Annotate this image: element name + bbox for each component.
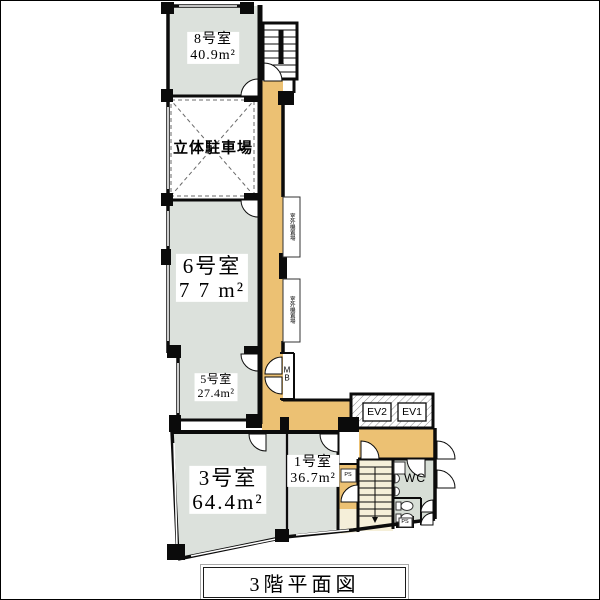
room6-label: 6号室 7 7 m² [176, 254, 248, 302]
plan-title: 3階平面図 [250, 568, 360, 597]
parking-label: 立体駐車場 [173, 140, 253, 157]
outdoor-unit-lower-label: 室外機置場 [288, 296, 294, 324]
room3-label: 3号室 64.4m² [189, 466, 266, 514]
title-box: 3階平面図 [203, 567, 406, 598]
room8-label: 8号室 40.9m² [187, 32, 239, 64]
room3-name: 3号室 [192, 466, 263, 490]
pipe-space-upper-label: PS [344, 472, 351, 478]
room1-area: 36.7m² [290, 471, 336, 487]
room8-area: 40.9m² [190, 48, 236, 64]
wc-label: WC [404, 472, 426, 486]
room1-name: 1号室 [290, 455, 336, 471]
floorplan-canvas: 8号室 40.9m² 立体駐車場 6号室 7 7 m² 5号室 27.4m² 3… [0, 0, 600, 600]
meter-box-label: MB [282, 367, 292, 384]
room6-name: 6号室 [179, 254, 245, 278]
outdoor-unit-upper-label: 室外機置場 [288, 213, 294, 241]
elevator2-label: EV2 [367, 406, 387, 418]
room6-area: 7 7 m² [179, 278, 245, 302]
floorplan-drawing [1, 1, 600, 600]
elevator1-label: EV1 [402, 406, 422, 418]
pipe-space-lower-label: PS [401, 519, 408, 525]
room8-name: 8号室 [190, 32, 236, 48]
room5-name: 5号室 [198, 373, 235, 387]
room1-label: 1号室 36.7m² [287, 455, 339, 487]
room5-label: 5号室 27.4m² [195, 373, 238, 401]
room3-area: 64.4m² [192, 490, 263, 514]
room5-area: 27.4m² [198, 387, 235, 401]
